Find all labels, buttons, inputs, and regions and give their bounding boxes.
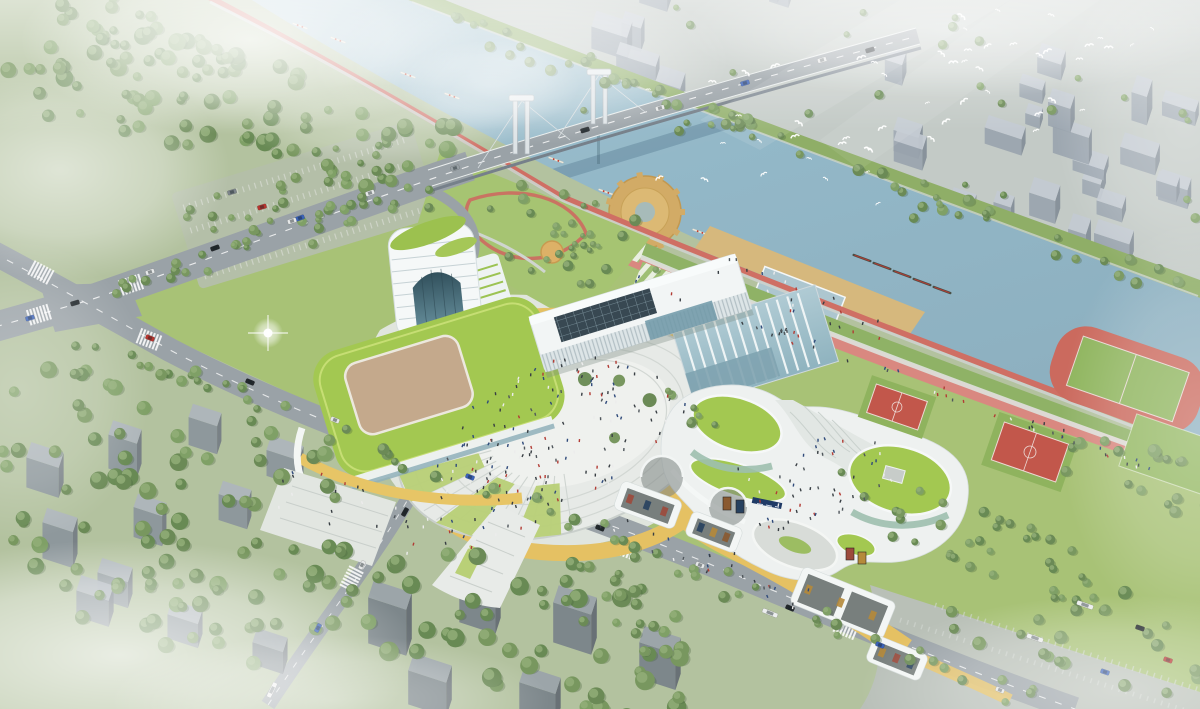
tree-highlight bbox=[119, 279, 124, 284]
tree-highlight bbox=[359, 180, 368, 189]
aerial-rendering: Aerial architectural rendering of riverf… bbox=[0, 0, 1200, 709]
tree-highlight bbox=[589, 689, 598, 698]
tree-highlight bbox=[1032, 533, 1037, 538]
tree-highlight bbox=[403, 577, 413, 587]
tree-highlight bbox=[447, 630, 457, 640]
tree-highlight bbox=[630, 215, 636, 221]
poster-board bbox=[846, 548, 854, 560]
tree-highlight bbox=[618, 231, 624, 237]
tree-highlight bbox=[1050, 587, 1055, 592]
person bbox=[737, 467, 739, 470]
tree-highlight bbox=[897, 509, 902, 514]
tree-highlight bbox=[273, 206, 277, 210]
tree-highlight bbox=[141, 276, 146, 281]
tree-highlight bbox=[579, 617, 585, 623]
tree-highlight bbox=[569, 514, 576, 521]
person bbox=[842, 508, 844, 511]
tree-highlight bbox=[321, 480, 329, 488]
person bbox=[735, 258, 737, 261]
person bbox=[513, 427, 515, 430]
person bbox=[817, 451, 819, 454]
person bbox=[615, 400, 617, 403]
person bbox=[790, 309, 792, 312]
tree-highlight bbox=[947, 607, 953, 613]
person bbox=[514, 450, 516, 453]
person bbox=[842, 440, 844, 443]
tree-highlight bbox=[691, 405, 695, 409]
tree-highlight bbox=[939, 499, 944, 504]
tree-highlight bbox=[587, 248, 590, 251]
person bbox=[499, 409, 501, 412]
tree-highlight bbox=[540, 601, 545, 606]
person bbox=[540, 496, 541, 499]
tree-highlight bbox=[309, 240, 314, 245]
tree-highlight bbox=[340, 205, 345, 210]
tree-highlight bbox=[581, 701, 588, 708]
person bbox=[634, 372, 636, 375]
tree-highlight bbox=[561, 576, 568, 583]
tree-highlight bbox=[916, 487, 921, 492]
tree-highlight bbox=[637, 672, 648, 683]
tree-highlight bbox=[963, 182, 966, 185]
tree-highlight bbox=[602, 265, 608, 271]
tree-highlight bbox=[631, 553, 637, 559]
tree-highlight bbox=[584, 562, 590, 568]
tree-highlight bbox=[592, 201, 596, 205]
tree-highlight bbox=[181, 447, 188, 454]
tree-highlight bbox=[918, 202, 924, 208]
person bbox=[671, 292, 673, 295]
tree-highlight bbox=[391, 556, 400, 565]
tree-highlight bbox=[244, 396, 249, 401]
tree-highlight bbox=[325, 435, 331, 441]
person bbox=[611, 476, 612, 479]
tree-highlight bbox=[503, 644, 511, 652]
tree-highlight bbox=[528, 268, 532, 272]
tree-highlight bbox=[665, 388, 669, 392]
tree-highlight bbox=[240, 497, 247, 504]
tree-highlight bbox=[347, 201, 352, 206]
tree-highlight bbox=[343, 425, 348, 430]
tree-highlight bbox=[1051, 251, 1057, 257]
tree-highlight bbox=[921, 180, 925, 184]
person bbox=[600, 417, 602, 420]
tree-highlight bbox=[420, 623, 430, 633]
tree-highlight bbox=[177, 377, 183, 383]
tree-highlight bbox=[136, 522, 145, 531]
person bbox=[557, 461, 558, 464]
tree-highlight bbox=[594, 649, 603, 658]
tree-highlight bbox=[330, 493, 336, 499]
person bbox=[792, 304, 794, 307]
tree-highlight bbox=[176, 479, 182, 485]
tree-highlight bbox=[1049, 565, 1054, 570]
tree-highlight bbox=[912, 539, 916, 543]
person bbox=[596, 466, 598, 469]
tree-highlight bbox=[274, 470, 283, 479]
tree-highlight bbox=[318, 447, 327, 456]
person bbox=[437, 464, 439, 467]
tree-highlight bbox=[544, 257, 548, 261]
tree-highlight bbox=[966, 539, 971, 544]
person bbox=[595, 356, 597, 359]
tree-highlight bbox=[888, 532, 894, 538]
tree-highlight bbox=[391, 200, 396, 205]
tree-highlight bbox=[532, 493, 538, 499]
tree-highlight bbox=[254, 406, 258, 410]
person bbox=[541, 488, 543, 491]
person bbox=[623, 448, 625, 451]
tree-highlight bbox=[1024, 535, 1028, 539]
tree-highlight bbox=[243, 238, 248, 243]
tree-highlight bbox=[577, 281, 581, 285]
person bbox=[553, 360, 555, 363]
tree-highlight bbox=[372, 167, 378, 173]
person bbox=[769, 585, 770, 588]
tree-highlight bbox=[247, 417, 253, 423]
tree-highlight bbox=[1101, 257, 1106, 262]
tree-highlight bbox=[249, 226, 255, 232]
tree-highlight bbox=[328, 170, 333, 175]
tree-highlight bbox=[577, 563, 582, 568]
person bbox=[335, 490, 337, 493]
tree-highlight bbox=[979, 508, 985, 514]
tree-highlight bbox=[556, 251, 560, 255]
tree-highlight bbox=[581, 203, 584, 206]
tree-highlight bbox=[470, 549, 480, 559]
tree-highlight bbox=[489, 483, 495, 489]
person bbox=[803, 454, 805, 457]
person bbox=[610, 420, 611, 423]
tree-highlight bbox=[519, 194, 525, 200]
tree-highlight bbox=[425, 204, 430, 209]
tree-highlight bbox=[670, 611, 677, 618]
tree-highlight bbox=[675, 570, 679, 574]
person bbox=[591, 383, 592, 386]
tree-highlight bbox=[690, 565, 696, 571]
person bbox=[879, 452, 880, 455]
tree-highlight bbox=[878, 168, 884, 174]
tree-highlight bbox=[871, 635, 877, 641]
tree-highlight bbox=[79, 522, 86, 529]
tree-highlight bbox=[291, 173, 297, 179]
tree-highlight bbox=[231, 243, 235, 247]
tree-highlight bbox=[194, 378, 198, 382]
person bbox=[476, 490, 478, 493]
tree-highlight bbox=[823, 607, 828, 612]
person bbox=[620, 445, 621, 448]
person bbox=[819, 451, 820, 454]
tree-highlight bbox=[156, 370, 162, 376]
mist-wisp bbox=[240, 85, 520, 165]
person bbox=[595, 474, 597, 477]
person bbox=[792, 602, 794, 605]
tree-highlight bbox=[891, 183, 896, 188]
tree-highlight bbox=[955, 212, 959, 216]
tree-highlight bbox=[204, 385, 209, 390]
tree-highlight bbox=[157, 504, 164, 511]
person bbox=[344, 482, 346, 485]
tree-highlight bbox=[547, 508, 551, 512]
tree-highlight bbox=[673, 692, 680, 699]
tree-highlight bbox=[308, 451, 316, 459]
person bbox=[278, 506, 280, 509]
tree-highlight bbox=[934, 195, 938, 199]
tree-highlight bbox=[629, 542, 636, 549]
person bbox=[548, 447, 549, 450]
tree-highlight bbox=[171, 455, 181, 465]
tree-highlight bbox=[551, 231, 555, 235]
tree-highlight bbox=[281, 401, 286, 406]
person bbox=[1033, 428, 1034, 431]
tree-highlight bbox=[567, 558, 574, 565]
tree-highlight bbox=[265, 427, 273, 435]
person bbox=[729, 258, 730, 261]
tree-highlight bbox=[388, 205, 393, 210]
person bbox=[852, 330, 853, 333]
person bbox=[376, 525, 378, 528]
person bbox=[778, 528, 780, 531]
tree-highlight bbox=[581, 242, 585, 246]
person bbox=[817, 439, 818, 442]
tree-highlight bbox=[615, 571, 619, 575]
tree-highlight bbox=[1006, 520, 1011, 525]
tree-highlight bbox=[838, 469, 842, 473]
tree-highlight bbox=[316, 211, 321, 216]
tree-highlight bbox=[653, 549, 658, 554]
tree-highlight bbox=[522, 658, 532, 668]
tree-highlight bbox=[587, 231, 591, 235]
person bbox=[611, 434, 612, 437]
person bbox=[452, 470, 453, 473]
tree-highlight bbox=[982, 211, 986, 215]
tree-highlight bbox=[426, 186, 431, 191]
person bbox=[455, 464, 456, 467]
tree-highlight bbox=[255, 455, 262, 462]
tree-highlight bbox=[613, 619, 618, 624]
person bbox=[653, 533, 654, 536]
person bbox=[679, 298, 681, 301]
tree-highlight bbox=[182, 269, 187, 274]
tree-highlight bbox=[517, 181, 523, 187]
tree-highlight bbox=[199, 251, 203, 255]
tree-highlight bbox=[277, 181, 283, 187]
person bbox=[530, 373, 532, 376]
tree-highlight bbox=[601, 520, 606, 525]
tree-highlight bbox=[964, 195, 970, 201]
person bbox=[505, 471, 506, 474]
person bbox=[761, 272, 763, 275]
tree-highlight bbox=[586, 280, 591, 285]
tree-highlight bbox=[167, 274, 172, 279]
person bbox=[544, 475, 545, 478]
tree-highlight bbox=[752, 584, 756, 588]
person bbox=[506, 491, 508, 494]
tree-highlight bbox=[632, 599, 638, 605]
tree-highlight bbox=[860, 493, 865, 498]
tree-highlight bbox=[386, 176, 393, 183]
tree-highlight bbox=[649, 622, 655, 628]
person bbox=[585, 471, 587, 474]
tree-highlight bbox=[161, 530, 170, 539]
tree-highlight bbox=[976, 537, 981, 542]
tree-highlight bbox=[724, 568, 729, 573]
person bbox=[542, 373, 544, 376]
person bbox=[524, 447, 526, 450]
tree-highlight bbox=[993, 523, 998, 528]
tree-highlight bbox=[442, 548, 450, 556]
rendering-canvas: Aerial architectural rendering of riverf… bbox=[0, 0, 1200, 709]
tree-highlight bbox=[480, 630, 490, 640]
tree-highlight bbox=[796, 151, 800, 155]
tree-highlight bbox=[527, 209, 532, 214]
tree-highlight bbox=[252, 438, 258, 444]
tree-highlight bbox=[267, 218, 271, 222]
tree-highlight bbox=[358, 193, 363, 198]
tree-highlight bbox=[172, 514, 182, 524]
person bbox=[718, 271, 719, 274]
tree-highlight bbox=[1001, 192, 1005, 196]
tree-highlight bbox=[563, 261, 569, 267]
tree-highlight bbox=[1027, 524, 1032, 529]
tree-highlight bbox=[565, 523, 569, 527]
person bbox=[791, 298, 793, 301]
tree-highlight bbox=[611, 576, 617, 582]
tree-highlight bbox=[505, 253, 510, 258]
tree-highlight bbox=[229, 215, 233, 219]
tree-highlight bbox=[936, 520, 942, 526]
tree-highlight bbox=[223, 495, 230, 502]
person bbox=[579, 439, 581, 442]
tree-highlight bbox=[123, 283, 128, 288]
person bbox=[746, 269, 748, 272]
tree-highlight bbox=[315, 224, 321, 230]
tree-highlight bbox=[279, 198, 285, 204]
tree-highlight bbox=[561, 231, 564, 234]
person bbox=[1029, 426, 1031, 429]
tree-highlight bbox=[512, 578, 522, 588]
tree-highlight bbox=[813, 616, 817, 620]
person bbox=[779, 475, 780, 478]
tree-highlight bbox=[966, 562, 972, 568]
tree-highlight bbox=[487, 206, 491, 210]
tree-highlight bbox=[535, 645, 542, 652]
tree-highlight bbox=[431, 471, 437, 477]
tree-highlight bbox=[455, 610, 461, 616]
tree-highlight bbox=[629, 586, 636, 593]
tree-highlight bbox=[392, 458, 396, 462]
person bbox=[592, 369, 594, 372]
tree-highlight bbox=[211, 227, 215, 231]
tree-highlight bbox=[404, 184, 408, 188]
tree-highlight bbox=[565, 678, 574, 687]
tree-highlight bbox=[687, 419, 692, 424]
person bbox=[520, 527, 522, 530]
tree-highlight bbox=[834, 632, 838, 636]
person bbox=[547, 475, 549, 478]
tree-highlight bbox=[937, 201, 941, 205]
tree-highlight bbox=[373, 572, 380, 579]
person bbox=[795, 287, 797, 290]
tree-highlight bbox=[129, 276, 133, 280]
tree-highlight bbox=[951, 554, 956, 559]
tree-highlight bbox=[611, 536, 616, 541]
tree-highlight bbox=[712, 422, 716, 426]
person bbox=[535, 520, 536, 523]
person bbox=[529, 453, 531, 456]
tree-highlight bbox=[481, 609, 488, 616]
person bbox=[875, 459, 877, 462]
tree-highlight bbox=[602, 592, 607, 597]
pier-tooth bbox=[677, 209, 685, 215]
tree-highlight bbox=[324, 177, 329, 182]
person bbox=[475, 470, 476, 473]
person bbox=[395, 507, 397, 510]
tree-highlight bbox=[636, 620, 641, 625]
tree-highlight bbox=[172, 259, 177, 264]
tree-highlight bbox=[191, 366, 197, 372]
person bbox=[593, 416, 594, 419]
tree-highlight bbox=[538, 587, 544, 593]
tree-highlight bbox=[172, 430, 180, 438]
tree-highlight bbox=[569, 220, 573, 224]
tree-highlight bbox=[572, 241, 575, 244]
person bbox=[491, 439, 492, 442]
tree-highlight bbox=[562, 596, 568, 602]
tree-highlight bbox=[619, 536, 624, 541]
tree-highlight bbox=[483, 491, 487, 495]
person bbox=[589, 392, 591, 395]
tree-highlight bbox=[239, 385, 243, 389]
pier-tooth bbox=[636, 172, 643, 181]
tree-highlight bbox=[341, 172, 347, 178]
tree-highlight bbox=[640, 647, 646, 653]
tree-highlight bbox=[202, 453, 209, 460]
tree-highlight bbox=[223, 381, 227, 385]
tree-highlight bbox=[831, 619, 837, 625]
tree-highlight bbox=[719, 592, 725, 598]
person bbox=[734, 552, 736, 555]
person bbox=[423, 525, 424, 528]
tree-highlight bbox=[632, 629, 638, 635]
tree-highlight bbox=[204, 268, 209, 273]
poster-board bbox=[736, 500, 744, 513]
tree-highlight bbox=[996, 516, 1001, 521]
person bbox=[607, 391, 609, 394]
tree-highlight bbox=[1072, 255, 1077, 260]
tree-highlight bbox=[691, 572, 696, 577]
poster-board bbox=[723, 497, 731, 510]
tree-highlight bbox=[374, 197, 379, 202]
tree-highlight bbox=[660, 646, 668, 654]
tree-highlight bbox=[336, 547, 342, 553]
tree-highlight bbox=[590, 241, 594, 245]
tree-highlight bbox=[252, 538, 258, 544]
tree-highlight bbox=[653, 267, 657, 271]
tree-highlight bbox=[553, 223, 557, 227]
tree-highlight bbox=[735, 591, 739, 595]
tree-highlight bbox=[245, 215, 249, 219]
tree-highlight bbox=[378, 444, 384, 450]
person bbox=[474, 518, 476, 521]
tree-highlight bbox=[1079, 574, 1083, 578]
person bbox=[615, 361, 617, 364]
tree-highlight bbox=[616, 590, 622, 596]
person bbox=[838, 511, 839, 514]
tree-highlight bbox=[466, 594, 475, 603]
tree-highlight bbox=[140, 483, 150, 493]
tree-highlight bbox=[323, 541, 331, 549]
